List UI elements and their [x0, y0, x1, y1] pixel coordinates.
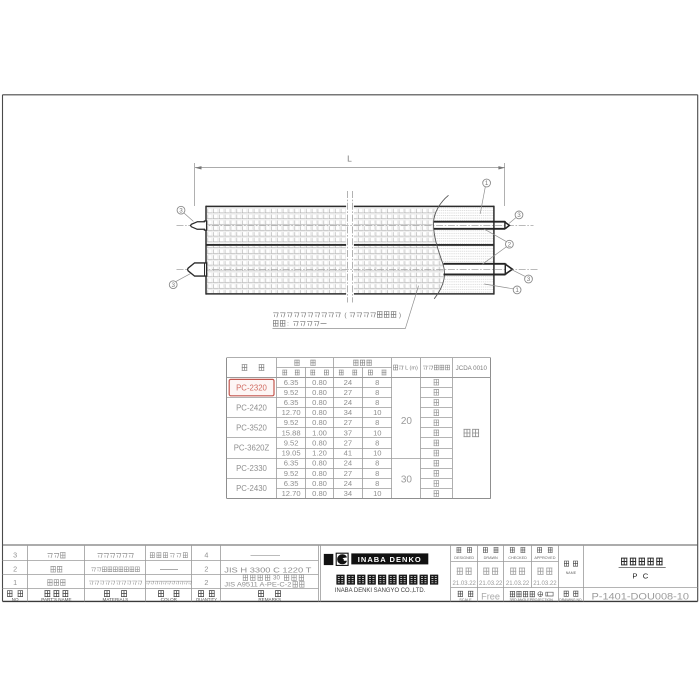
- svg-text:8: 8: [375, 388, 379, 397]
- svg-text:PC-2320: PC-2320: [236, 383, 267, 392]
- svg-text:15.88: 15.88: [282, 428, 301, 437]
- svg-text:JIS A9511 A-PE-C-2: JIS A9511 A-PE-C-2: [224, 582, 292, 589]
- svg-text:INABA DENKO: INABA DENKO: [358, 555, 422, 564]
- svg-text:10: 10: [373, 408, 381, 417]
- svg-text:P-1401-DOU008-10: P-1401-DOU008-10: [592, 590, 690, 601]
- svg-text:0.80: 0.80: [312, 469, 327, 478]
- svg-text:10: 10: [373, 428, 381, 437]
- svg-text:3: 3: [171, 282, 175, 289]
- svg-text:PC-2330: PC-2330: [236, 464, 267, 473]
- svg-text:(: (: [344, 312, 347, 319]
- svg-text:9.52: 9.52: [284, 418, 299, 427]
- svg-text:9.52: 9.52: [284, 388, 299, 397]
- svg-text:20: 20: [401, 416, 413, 427]
- svg-text:0.80: 0.80: [312, 438, 327, 447]
- svg-text:21.03.22: 21.03.22: [533, 581, 557, 587]
- svg-text:30: 30: [273, 575, 280, 582]
- svg-text:1: 1: [515, 287, 519, 294]
- svg-text:34: 34: [344, 408, 352, 417]
- svg-text:8: 8: [375, 438, 379, 447]
- svg-text:PC-3520: PC-3520: [236, 424, 267, 433]
- svg-text:0.80: 0.80: [312, 378, 327, 387]
- svg-text:8: 8: [375, 459, 379, 468]
- svg-text:0.80: 0.80: [312, 479, 327, 488]
- svg-text:12.70: 12.70: [282, 408, 301, 417]
- svg-text:1: 1: [13, 578, 17, 587]
- svg-text:9.52: 9.52: [284, 438, 299, 447]
- svg-text:2: 2: [508, 241, 512, 248]
- svg-text:L (m): L (m): [405, 366, 418, 372]
- svg-text:QUANTITY: QUANTITY: [196, 597, 217, 602]
- svg-text:21.03.22: 21.03.22: [506, 581, 530, 587]
- svg-text:19.05: 19.05: [282, 449, 301, 458]
- svg-text:COLOR: COLOR: [161, 597, 178, 602]
- svg-text:30: 30: [401, 475, 413, 486]
- svg-text::: :: [287, 321, 289, 328]
- svg-text:DRAWN: DRAWN: [484, 556, 498, 560]
- svg-text:27: 27: [344, 418, 352, 427]
- svg-text:0.80: 0.80: [312, 489, 327, 498]
- svg-text:21.03.22: 21.03.22: [453, 581, 477, 587]
- svg-text:3RD ANGLEPROJECTION: 3RD ANGLEPROJECTION: [510, 598, 554, 602]
- svg-text:8: 8: [375, 418, 379, 427]
- svg-text:0.80: 0.80: [312, 388, 327, 397]
- svg-text:21.03.22: 21.03.22: [479, 581, 503, 587]
- svg-text:): ): [399, 312, 401, 319]
- svg-text:9.52: 9.52: [284, 469, 299, 478]
- svg-text:1.20: 1.20: [312, 449, 327, 458]
- svg-text:27: 27: [344, 469, 352, 478]
- svg-text:JCDA 0010: JCDA 0010: [456, 365, 488, 372]
- svg-text:3: 3: [527, 276, 531, 283]
- svg-text:PART'S NAME: PART'S NAME: [41, 597, 71, 602]
- svg-text:37: 37: [344, 428, 352, 437]
- svg-text:INABA DENKI SANGYO CO.,LTD.: INABA DENKI SANGYO CO.,LTD.: [335, 587, 426, 594]
- svg-text:10: 10: [373, 489, 381, 498]
- svg-text:2: 2: [204, 578, 208, 587]
- svg-text:3: 3: [517, 212, 521, 219]
- svg-text:MATERIALS: MATERIALS: [103, 597, 129, 602]
- svg-text:0.80: 0.80: [312, 459, 327, 468]
- svg-text:APPROVED: APPROVED: [534, 556, 555, 560]
- svg-text:8: 8: [375, 378, 379, 387]
- svg-text:3: 3: [13, 551, 17, 560]
- svg-text:0.80: 0.80: [312, 398, 327, 407]
- svg-text:41: 41: [344, 449, 352, 458]
- svg-text:27: 27: [344, 438, 352, 447]
- svg-text:1.00: 1.00: [312, 428, 327, 437]
- svg-text:24: 24: [344, 398, 352, 407]
- svg-text:0.80: 0.80: [312, 408, 327, 417]
- svg-text:34: 34: [344, 489, 352, 498]
- svg-text:6.35: 6.35: [284, 398, 299, 407]
- svg-text:Free: Free: [481, 591, 500, 601]
- svg-text:DESIGNED: DESIGNED: [454, 556, 474, 560]
- svg-text:P C: P C: [632, 571, 650, 580]
- svg-text:1: 1: [485, 180, 489, 187]
- svg-text:PC-2430: PC-2430: [236, 484, 267, 493]
- svg-text:6.35: 6.35: [284, 378, 299, 387]
- svg-text:PC-3620Z: PC-3620Z: [234, 444, 270, 453]
- svg-text:24: 24: [344, 459, 352, 468]
- svg-text:2: 2: [13, 565, 17, 574]
- svg-text:27: 27: [344, 388, 352, 397]
- svg-text:JIS H 3300 C 1220 T: JIS H 3300 C 1220 T: [224, 565, 312, 574]
- svg-text:8: 8: [375, 469, 379, 478]
- svg-text:NAME: NAME: [566, 571, 577, 575]
- svg-text:L: L: [347, 154, 352, 164]
- svg-text:REMARKS: REMARKS: [258, 597, 281, 602]
- svg-text:24: 24: [344, 378, 352, 387]
- svg-text:8: 8: [375, 398, 379, 407]
- svg-text:NO: NO: [12, 597, 19, 602]
- svg-text:6.35: 6.35: [284, 479, 299, 488]
- svg-text:SCALE: SCALE: [459, 598, 472, 602]
- svg-text:CHECKED: CHECKED: [508, 556, 527, 560]
- svg-text:2: 2: [204, 565, 208, 574]
- svg-text:PC-2420: PC-2420: [236, 403, 267, 412]
- svg-text:24: 24: [344, 479, 352, 488]
- svg-text:8: 8: [375, 479, 379, 488]
- svg-text:10: 10: [373, 449, 381, 458]
- svg-text:3: 3: [179, 207, 183, 214]
- svg-text:0.80: 0.80: [312, 418, 327, 427]
- svg-text:6.35: 6.35: [284, 459, 299, 468]
- svg-text:DRAWING NO.: DRAWING NO.: [559, 598, 582, 602]
- svg-text:4: 4: [204, 551, 208, 560]
- svg-text:12.70: 12.70: [282, 489, 301, 498]
